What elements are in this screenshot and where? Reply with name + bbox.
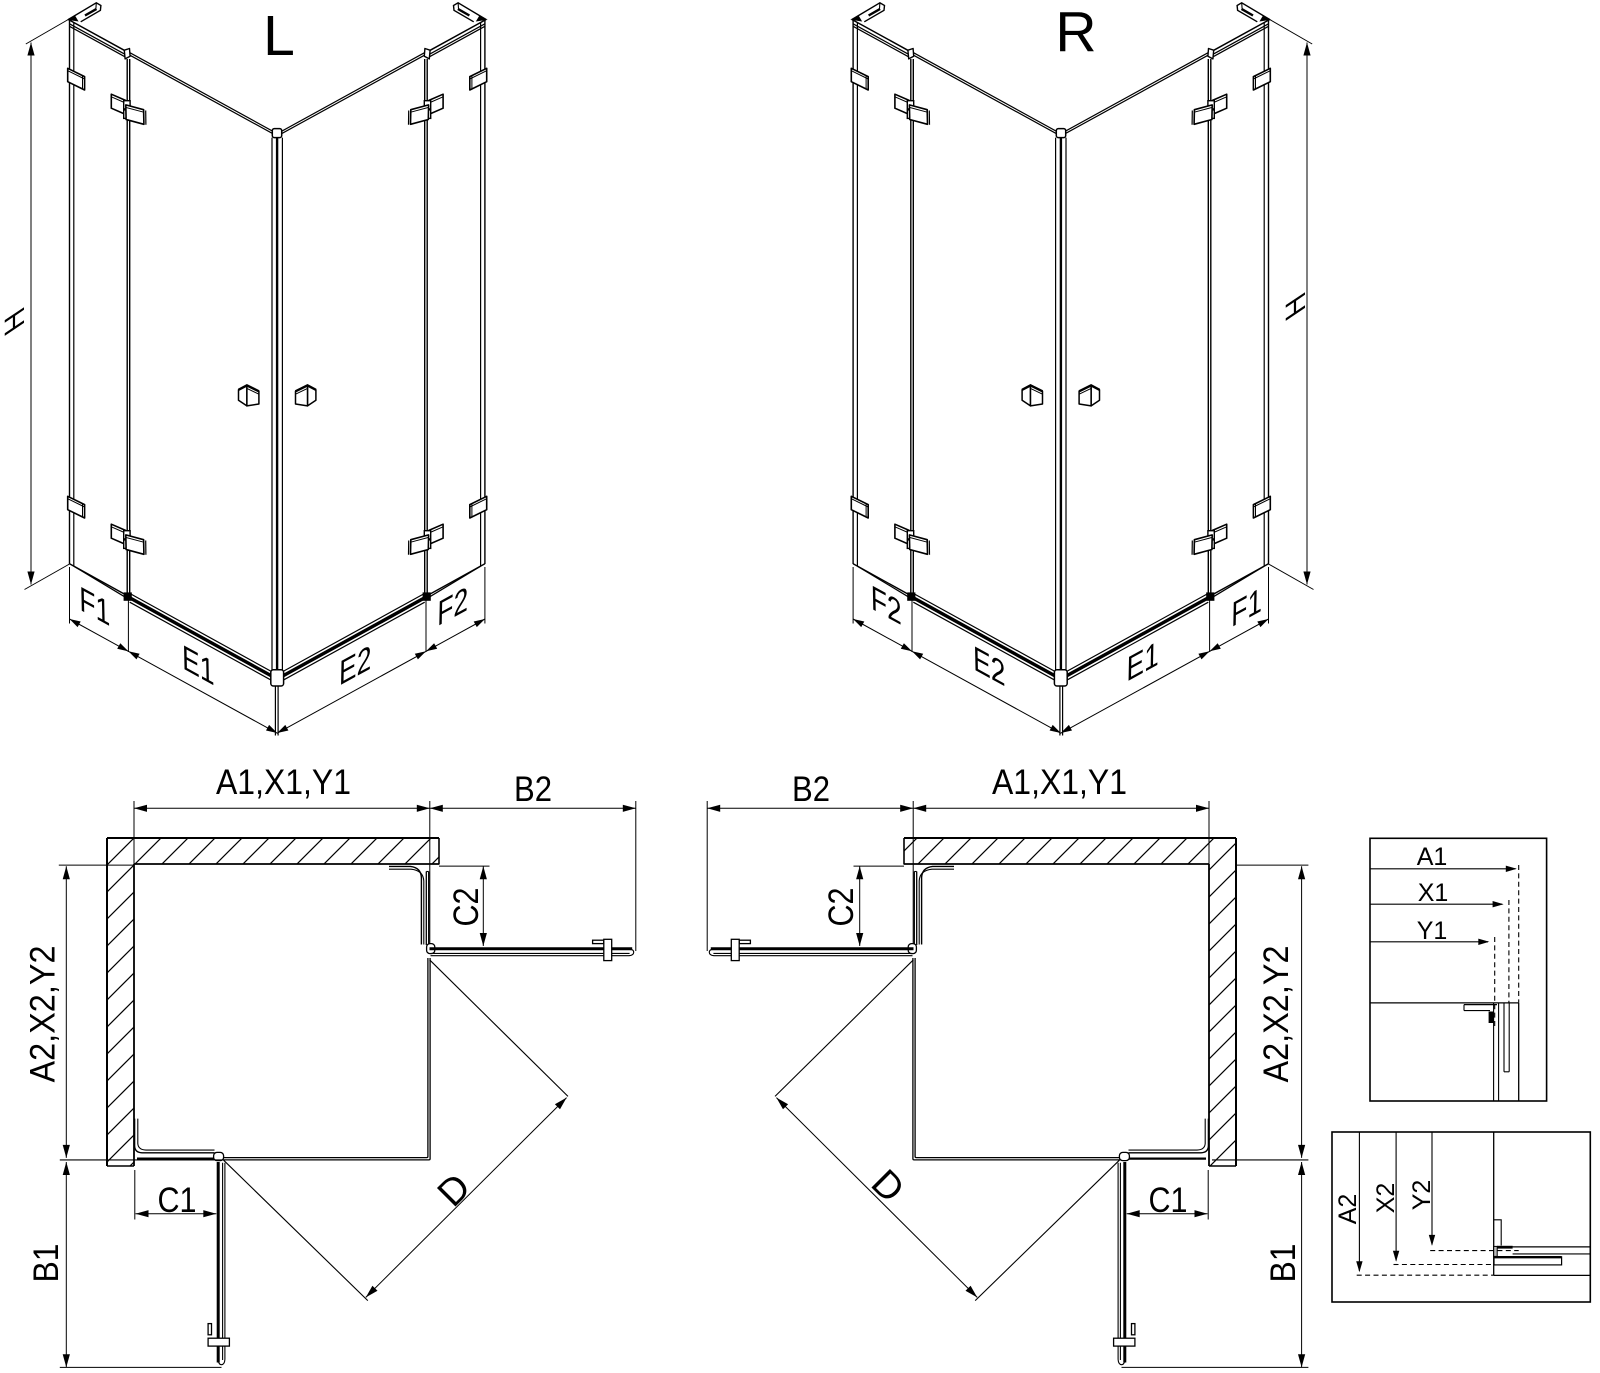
svg-text:A1,X1,Y1: A1,X1,Y1 (992, 763, 1127, 802)
svg-text:A2: A2 (1334, 1194, 1362, 1225)
svg-text:L: L (263, 4, 295, 68)
svg-text:C2: C2 (822, 888, 861, 927)
svg-text:Y1: Y1 (1417, 917, 1448, 945)
svg-text:R: R (1055, 0, 1096, 64)
svg-text:B1: B1 (27, 1244, 66, 1283)
svg-text:A1,X1,Y1: A1,X1,Y1 (216, 763, 351, 802)
svg-text:B2: B2 (514, 770, 552, 809)
svg-text:B1: B1 (1264, 1244, 1303, 1283)
svg-text:X1: X1 (1418, 879, 1449, 907)
svg-text:B2: B2 (792, 770, 830, 809)
svg-text:A2,X2,Y2: A2,X2,Y2 (1257, 946, 1296, 1083)
svg-text:C1: C1 (158, 1181, 197, 1220)
svg-text:C2: C2 (447, 888, 486, 927)
svg-text:C1: C1 (1149, 1181, 1188, 1220)
svg-text:A2,X2,Y2: A2,X2,Y2 (24, 946, 63, 1083)
svg-text:A1: A1 (1417, 843, 1448, 871)
